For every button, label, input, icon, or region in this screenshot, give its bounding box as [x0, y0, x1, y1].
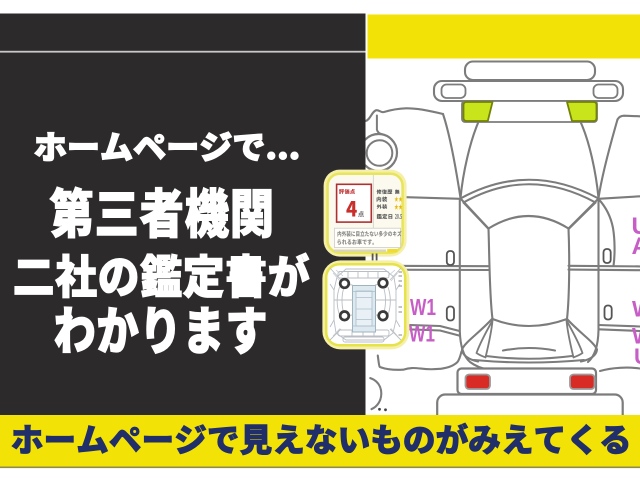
svg-text:W1: W1	[409, 320, 435, 346]
svg-text:A1: A1	[632, 233, 640, 260]
svg-text:W1: W1	[632, 297, 640, 322]
svg-text:U1: U1	[634, 344, 640, 369]
svg-text:W1: W1	[410, 294, 436, 320]
